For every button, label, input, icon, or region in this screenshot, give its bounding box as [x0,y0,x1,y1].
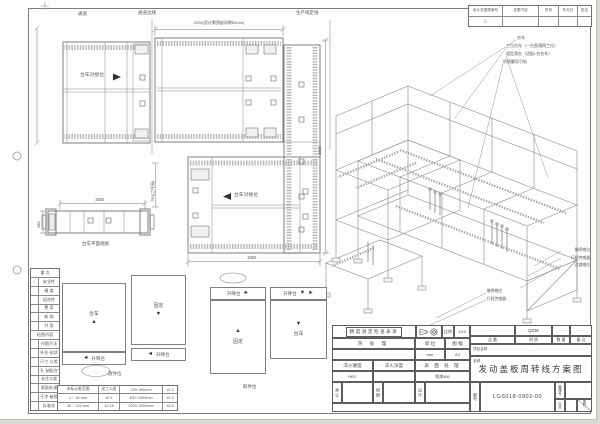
check-label: 校 图 [373,382,383,403]
checklist-row-interference: 干涉·破损 [31,393,59,402]
checklist-header: 重 点 [31,269,59,278]
checklist-row-fit: 孔·轴配合 [31,367,59,376]
heat-treatment-label: 热 处 理 [332,338,415,349]
diagram-box-label: 固定 [233,338,243,345]
hardness-value: HRC [332,371,373,382]
aisle-edge-label: 通道边线 [138,11,156,16]
depth-value: · [373,371,415,382]
checklist-row-surface: 表面处理 [31,384,59,393]
dock-arrow-right-icon [113,74,121,81]
iso-callout-transition-sensor: 过渡感应 [540,263,590,267]
title-block: 精度测定检查表单 比例 1/10 热 处 理 单 位 图 幅 mm A3 淬火硬… [332,325,592,412]
dim-1500: 1500 [95,198,104,203]
accuracy-check-banner: 精度测定检查表单 [332,325,416,338]
revision-col-content: 变更内容 [503,6,539,16]
tolerance-cell: 1000~2000mm [120,403,163,410]
tolerance-cell: 未标公差范围 [58,386,99,393]
footer-strip: · [332,403,470,412]
tolerance-row: 未标公差范围 加工公差 120~400mm ±0.2 [58,386,177,394]
checklist-row-method: 作图方法 [31,340,59,349]
dim-1650: 1650 [247,256,256,261]
diagram-box-label: 固定 [153,302,163,309]
dimension-lines [35,25,330,266]
approve-label: 承 认 [332,382,342,403]
material-label: 材 质 [515,336,552,344]
dim-2200: 2200(设计需预留间隙50mm) [170,21,268,25]
remark-value: · [570,325,592,336]
callout-leader-lines [428,40,561,326]
revision-value-row: △ · · · · [469,17,591,27]
pick-position-caption: 取件位 [243,385,257,390]
aisle-label: 通道 [78,12,87,17]
format-value: A3 [445,349,470,360]
project-name-cell: 项目名称 · [470,344,592,356]
tolerance-cell: ±0.5 [163,403,177,410]
name-label: 名称 [473,359,480,364]
hardness-label: 淬火硬度 [332,360,373,371]
part-number-value: · [470,325,515,336]
first-angle-projection-icon [418,327,440,337]
dock-position-label-top: 台车对接位 [80,73,104,78]
tolerance-row: 1 ~ 30 mm ±0.1 400~1000mm ±0.3 [58,394,177,402]
tolerance-cell: ±0.15 [99,403,120,410]
management-number-label: 管理号 [555,382,565,399]
diagram-lift-strip-1: ◄ 升降台 [62,352,126,365]
iso-callout-station-trolley: 工位台车（一台直通两工位） [506,44,558,48]
diagram-lift-strip-3: 升降台 ► [210,287,266,300]
tolerance-cell: ±0.2 [163,386,177,393]
tolerance-cell: ±0.3 [163,394,177,401]
checklist-row-new: 新 规 [31,313,59,322]
iso-callout-stop-sensor-2: 触停感应 [487,289,502,293]
trolley-side-view [42,209,154,235]
arrow-left-icon: ◄ [148,352,153,358]
diagram-box-label: 台车 [293,330,303,337]
diagram-fixed-box-2: ▲ 固定 [210,300,266,374]
diagram-fixed-box-1: 固定 ▼ [131,275,186,345]
checklist-row-precision: 精 度 [31,287,59,296]
classification-value: · [565,399,577,412]
revision-value-symbol: · [539,17,559,27]
arrow-down-icon: ▼ [156,312,161,318]
design-signature-cell [425,382,470,403]
revision-col-name: 姓名 [578,6,591,16]
dim-380: 380 [36,221,41,228]
heat-treatment-value [332,349,415,360]
project-name-value: · [530,348,531,353]
iso-callout-trolley: 台车 [517,36,525,40]
approve-signature-cell [342,382,373,403]
place-position-caption: 放件位 [108,372,122,377]
quantity-value: · [552,325,570,336]
classification-label: 区分 [555,399,565,412]
revision-col-proposal: 设计变更提案号 [469,6,503,16]
engineering-drawing-page: { "colors": { "paper": "#fdfdfc", "line"… [0,0,600,424]
dock-arrow-left-icon [223,193,231,200]
revision-value-proposal: △ [469,17,503,27]
lift-label: 升降台 [227,291,241,297]
arrow-right-icon: ► [244,291,249,297]
management-number-value: · [565,382,592,399]
tolerance-table: 未标公差范围 加工公差 120~400mm ±0.2 1 ~ 30 mm ±0.… [57,385,178,411]
projection-symbol-cell [416,325,442,338]
check-point-table: 重 点 ○安全性 精 度 组合性 费 用 新 规 共 用 检图内容 作图方法 外… [30,268,60,411]
arrow-up-icon: ▲ [235,329,240,335]
revision-value-content: · [503,17,539,27]
revision-header-row: 设计变更提案号 变更内容 符号 年月日 姓名 [469,6,591,17]
diagram-lift-strip-4: 升降台 ▼ ► [270,287,327,300]
iso-callout-fixed-slide: 固定滑台（适配L台台车） [506,52,552,56]
revision-col-symbol: 符号 [539,6,559,16]
tolerance-cell: 1 ~ 30 mm [58,394,99,401]
tolerance-cell: 400~1000mm [120,394,163,401]
design-label: 设 计 [415,382,425,403]
checklist-row-standard: 标准化 [31,402,59,410]
trolley-view-caption: 台车平面视图 [82,242,109,247]
lift-label: 升降台 [91,356,105,362]
checklist-row-dimension: 尺寸·公差 [31,358,59,367]
revision-value-name: · [578,17,591,27]
remark-label: 备 注 [570,336,592,344]
tolerance-cell: ±0.1 [99,394,120,401]
iso-callout-guide-rail: 防侧翻导引轨 [503,60,527,64]
check-signature-cell [383,382,415,403]
tolerance-cell: 加工公差 [99,386,120,393]
tolerance-cell: 120~400mm [120,386,163,393]
top-plan-view [63,20,330,253]
depth-label: 淬火深度 [373,360,415,371]
drawing-name-cell: 名称 发动盖板周转线方案图 [470,356,592,382]
arrow-down-icon: ▼ [300,291,305,297]
tolerance-row: 30 ~ 120 mm ±0.15 1000~2000mm ±0.5 [58,403,177,410]
arrow-right-icon: ► [308,291,313,297]
surface-treatment-value: 喷漆480 [415,371,470,382]
dim-750: 750(工作高) [150,181,156,202]
scale-label: 比例 [442,325,454,338]
checklist-row-shared: 共 用 [31,322,59,331]
iso-callout-travel-sensor-2: 行程传感器 [487,297,506,301]
format-label: 图 幅 [445,338,470,349]
checklist-section-header: 检图内容 [31,331,59,340]
checklist-row-safety: ○安全性 [31,278,59,287]
revision-table: 设计变更提案号 变更内容 符号 年月日 姓名 △ · · · · [468,5,592,27]
iso-callout-stop-sensor-1: 触停感应 [540,248,590,252]
arrow-left-icon: ◄ [83,356,88,362]
unit-value: mm [415,349,445,360]
arrow-up-icon: ▲ [91,320,96,326]
drawing-sheet: 通道 通道边线 2200(设计需预留间隙50mm) 生产线定线 台车对接位 台车… [0,0,597,420]
scale-value: 1/10 [454,325,470,338]
iso-callout-travel-sensor-1: 行程传感器 [540,256,590,260]
quantity-label: 数 量 [552,336,570,344]
unit-label: 单 位 [415,338,445,349]
drawing-title: 发动盖板周转线方案图 [478,363,583,375]
sheet-code-cell: 图码 [577,399,592,412]
surface-treatment-label: 表 面 处 理 [415,360,470,371]
drawing-number-value: LGS018-0902-00 [480,382,555,412]
project-name-label: 项目名称 [473,347,487,352]
tolerance-cell: 30 ~ 120 mm [58,403,99,410]
revision-col-date: 年月日 [559,6,578,16]
checklist-row-cost: 费 用 [31,305,59,314]
part-number-label: 品 番 [470,336,515,344]
diagram-trolley-box-1: 台车 ▲ [62,283,126,352]
drawing-number-label: 图号 [470,382,480,412]
checklist-row-shape: 外形·形状 [31,349,59,358]
checklist-row-untoleranced: 未注公差 [31,376,59,385]
diagram-lift-strip-2: ◄ 升降台 [131,348,186,361]
arrow-down-icon: ▼ [296,322,301,328]
revision-value-date: · [559,17,578,27]
production-line-label: 生产线定线 [296,11,319,16]
lift-label: 升降台 [283,291,297,297]
dim-3800: 3800 [317,146,322,155]
lift-label: 升降台 [156,352,170,358]
material-value: Q235 [515,325,552,336]
diagram-trolley-box-2: ▼ 台车 [270,300,327,359]
dock-position-label-lower: 台车对接位 [234,193,258,198]
diagram-box-label: 台车 [89,310,99,317]
isometric-view [322,40,581,326]
checklist-row-assembly: 组合性 [31,296,59,305]
